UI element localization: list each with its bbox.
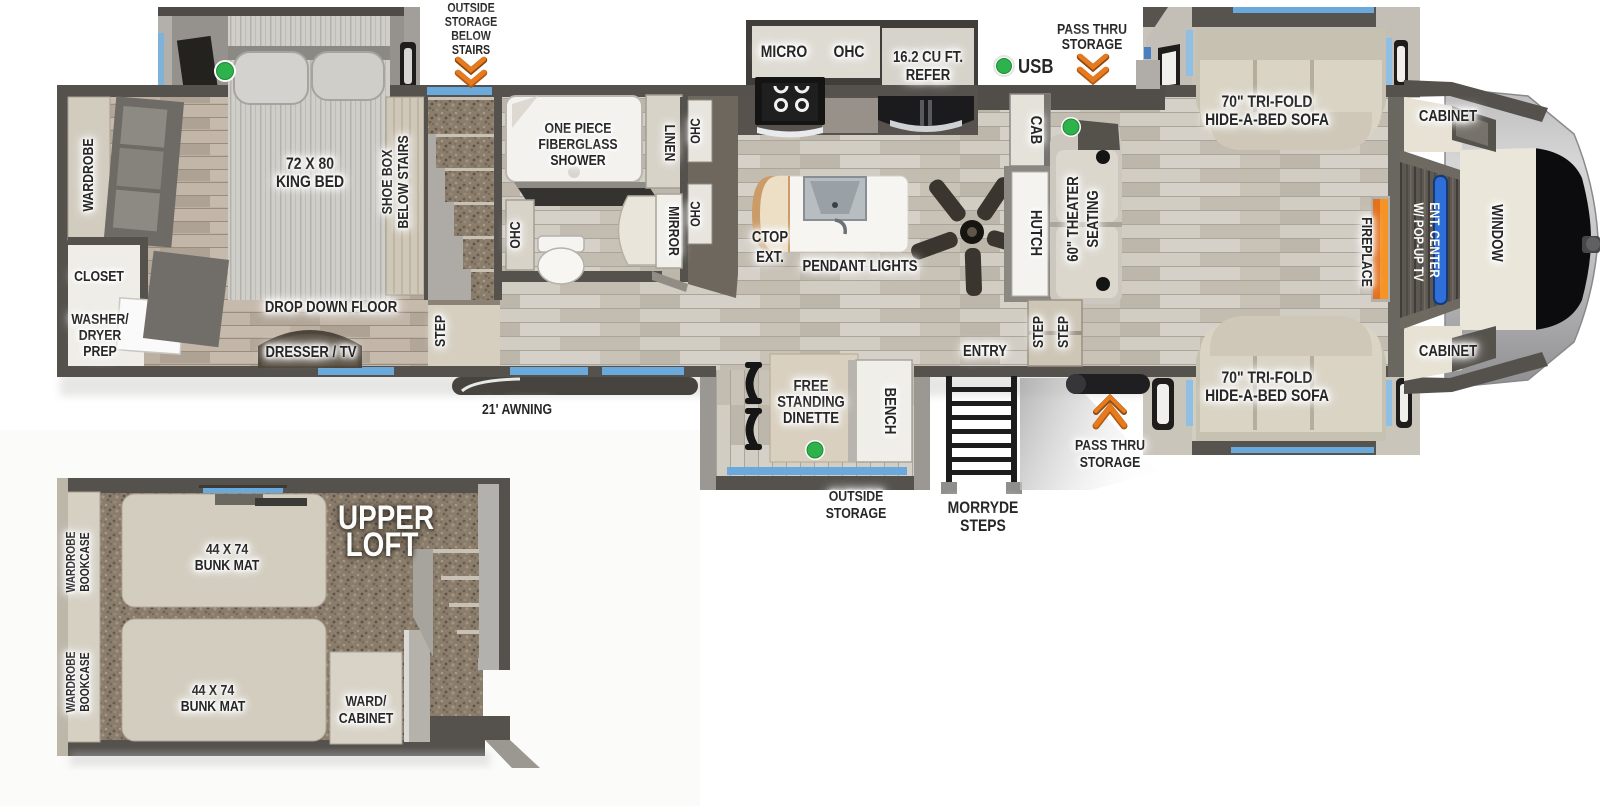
svg-text:DRYER: DRYER — [79, 327, 122, 343]
svg-text:PASS THRU: PASS THRU — [1075, 437, 1145, 453]
svg-text:ENTRY: ENTRY — [963, 343, 1007, 360]
svg-text:DINETTE: DINETTE — [783, 410, 839, 427]
svg-text:WARDROBE: WARDROBE — [80, 138, 96, 211]
svg-text:21' AWNING: 21' AWNING — [482, 401, 552, 417]
svg-text:LOFT: LOFT — [346, 525, 419, 563]
svg-text:SEATING: SEATING — [1085, 190, 1102, 247]
svg-text:STORAGE: STORAGE — [826, 505, 887, 521]
svg-text:KING BED: KING BED — [276, 173, 344, 192]
svg-text:WASHER/: WASHER/ — [71, 311, 129, 327]
svg-text:DRESSER / TV: DRESSER / TV — [265, 344, 356, 361]
svg-text:HUTCH: HUTCH — [1027, 210, 1044, 256]
svg-text:STORAGE: STORAGE — [445, 14, 498, 29]
svg-text:CABINET: CABINET — [1419, 343, 1477, 360]
svg-text:BENCH: BENCH — [881, 388, 898, 435]
svg-text:16.2 CU FT.: 16.2 CU FT. — [893, 49, 963, 66]
svg-text:70" TRI-FOLD: 70" TRI-FOLD — [1222, 369, 1313, 388]
svg-text:44 X 74: 44 X 74 — [206, 541, 249, 557]
svg-text:WARD/: WARD/ — [346, 693, 387, 709]
svg-text:STEP: STEP — [1055, 316, 1071, 348]
svg-text:STORAGE: STORAGE — [1062, 36, 1123, 52]
svg-text:ONE PIECE: ONE PIECE — [545, 120, 612, 136]
svg-text:USB: USB — [1018, 55, 1053, 78]
svg-text:MORRYDE: MORRYDE — [948, 499, 1019, 518]
svg-text:70" TRI-FOLD: 70" TRI-FOLD — [1222, 93, 1313, 112]
svg-text:CABINET: CABINET — [1419, 108, 1477, 125]
svg-text:STEP: STEP — [1030, 316, 1046, 348]
svg-text:W/ POP-UP TV: W/ POP-UP TV — [1411, 203, 1427, 282]
svg-text:BOOKCASE: BOOKCASE — [79, 532, 92, 592]
svg-text:OHC: OHC — [834, 43, 865, 62]
svg-text:STAIRS: STAIRS — [452, 42, 490, 57]
svg-text:FREE: FREE — [794, 378, 829, 395]
svg-text:OHC: OHC — [687, 118, 703, 144]
svg-text:CTOP: CTOP — [752, 229, 788, 246]
svg-text:72 X 80: 72 X 80 — [286, 155, 334, 174]
svg-text:WARDROBE: WARDROBE — [65, 651, 78, 712]
svg-text:HIDE-A-BED SOFA: HIDE-A-BED SOFA — [1205, 387, 1329, 406]
svg-text:HIDE-A-BED SOFA: HIDE-A-BED SOFA — [1205, 111, 1329, 130]
svg-text:60" THEATER: 60" THEATER — [1065, 176, 1082, 262]
svg-text:STANDING: STANDING — [777, 394, 845, 411]
svg-text:PREP: PREP — [83, 343, 116, 359]
svg-text:FIREPLACE: FIREPLACE — [1359, 217, 1375, 287]
svg-text:BOOKCASE: BOOKCASE — [79, 652, 92, 712]
svg-text:REFER: REFER — [906, 67, 951, 84]
svg-text:OHC: OHC — [687, 201, 703, 227]
svg-text:STEP: STEP — [432, 315, 448, 347]
svg-text:DROP DOWN FLOOR: DROP DOWN FLOOR — [265, 299, 398, 316]
svg-text:FIBERGLASS: FIBERGLASS — [538, 136, 617, 152]
svg-text:BUNK MAT: BUNK MAT — [181, 698, 246, 714]
svg-text:CLOSET: CLOSET — [74, 268, 124, 284]
svg-text:STEPS: STEPS — [960, 517, 1006, 536]
svg-text:OHC: OHC — [507, 221, 523, 248]
svg-text:BUNK MAT: BUNK MAT — [195, 557, 260, 573]
svg-text:CABINET: CABINET — [339, 710, 394, 726]
svg-text:CAB: CAB — [1027, 116, 1044, 144]
svg-text:LINEN: LINEN — [662, 125, 678, 162]
svg-text:SHOE BOX: SHOE BOX — [379, 149, 395, 215]
svg-text:PENDANT LIGHTS: PENDANT LIGHTS — [802, 258, 917, 275]
svg-text:BELOW: BELOW — [451, 28, 491, 43]
svg-text:STORAGE: STORAGE — [1080, 454, 1141, 470]
svg-text:OUTSIDE: OUTSIDE — [829, 488, 884, 504]
svg-text:ENT. CENTER: ENT. CENTER — [1427, 202, 1443, 277]
svg-text:WINDOW: WINDOW — [1488, 204, 1505, 262]
svg-text:SHOWER: SHOWER — [550, 152, 605, 168]
svg-text:MIRROR: MIRROR — [666, 206, 682, 256]
svg-text:44 X 74: 44 X 74 — [192, 682, 235, 698]
svg-text:PASS THRU: PASS THRU — [1057, 21, 1127, 37]
svg-text:BELOW STAIRS: BELOW STAIRS — [395, 135, 411, 228]
svg-text:EXT.: EXT. — [756, 249, 784, 266]
svg-text:MICRO: MICRO — [761, 43, 807, 62]
svg-text:WARDROBE: WARDROBE — [65, 531, 78, 592]
